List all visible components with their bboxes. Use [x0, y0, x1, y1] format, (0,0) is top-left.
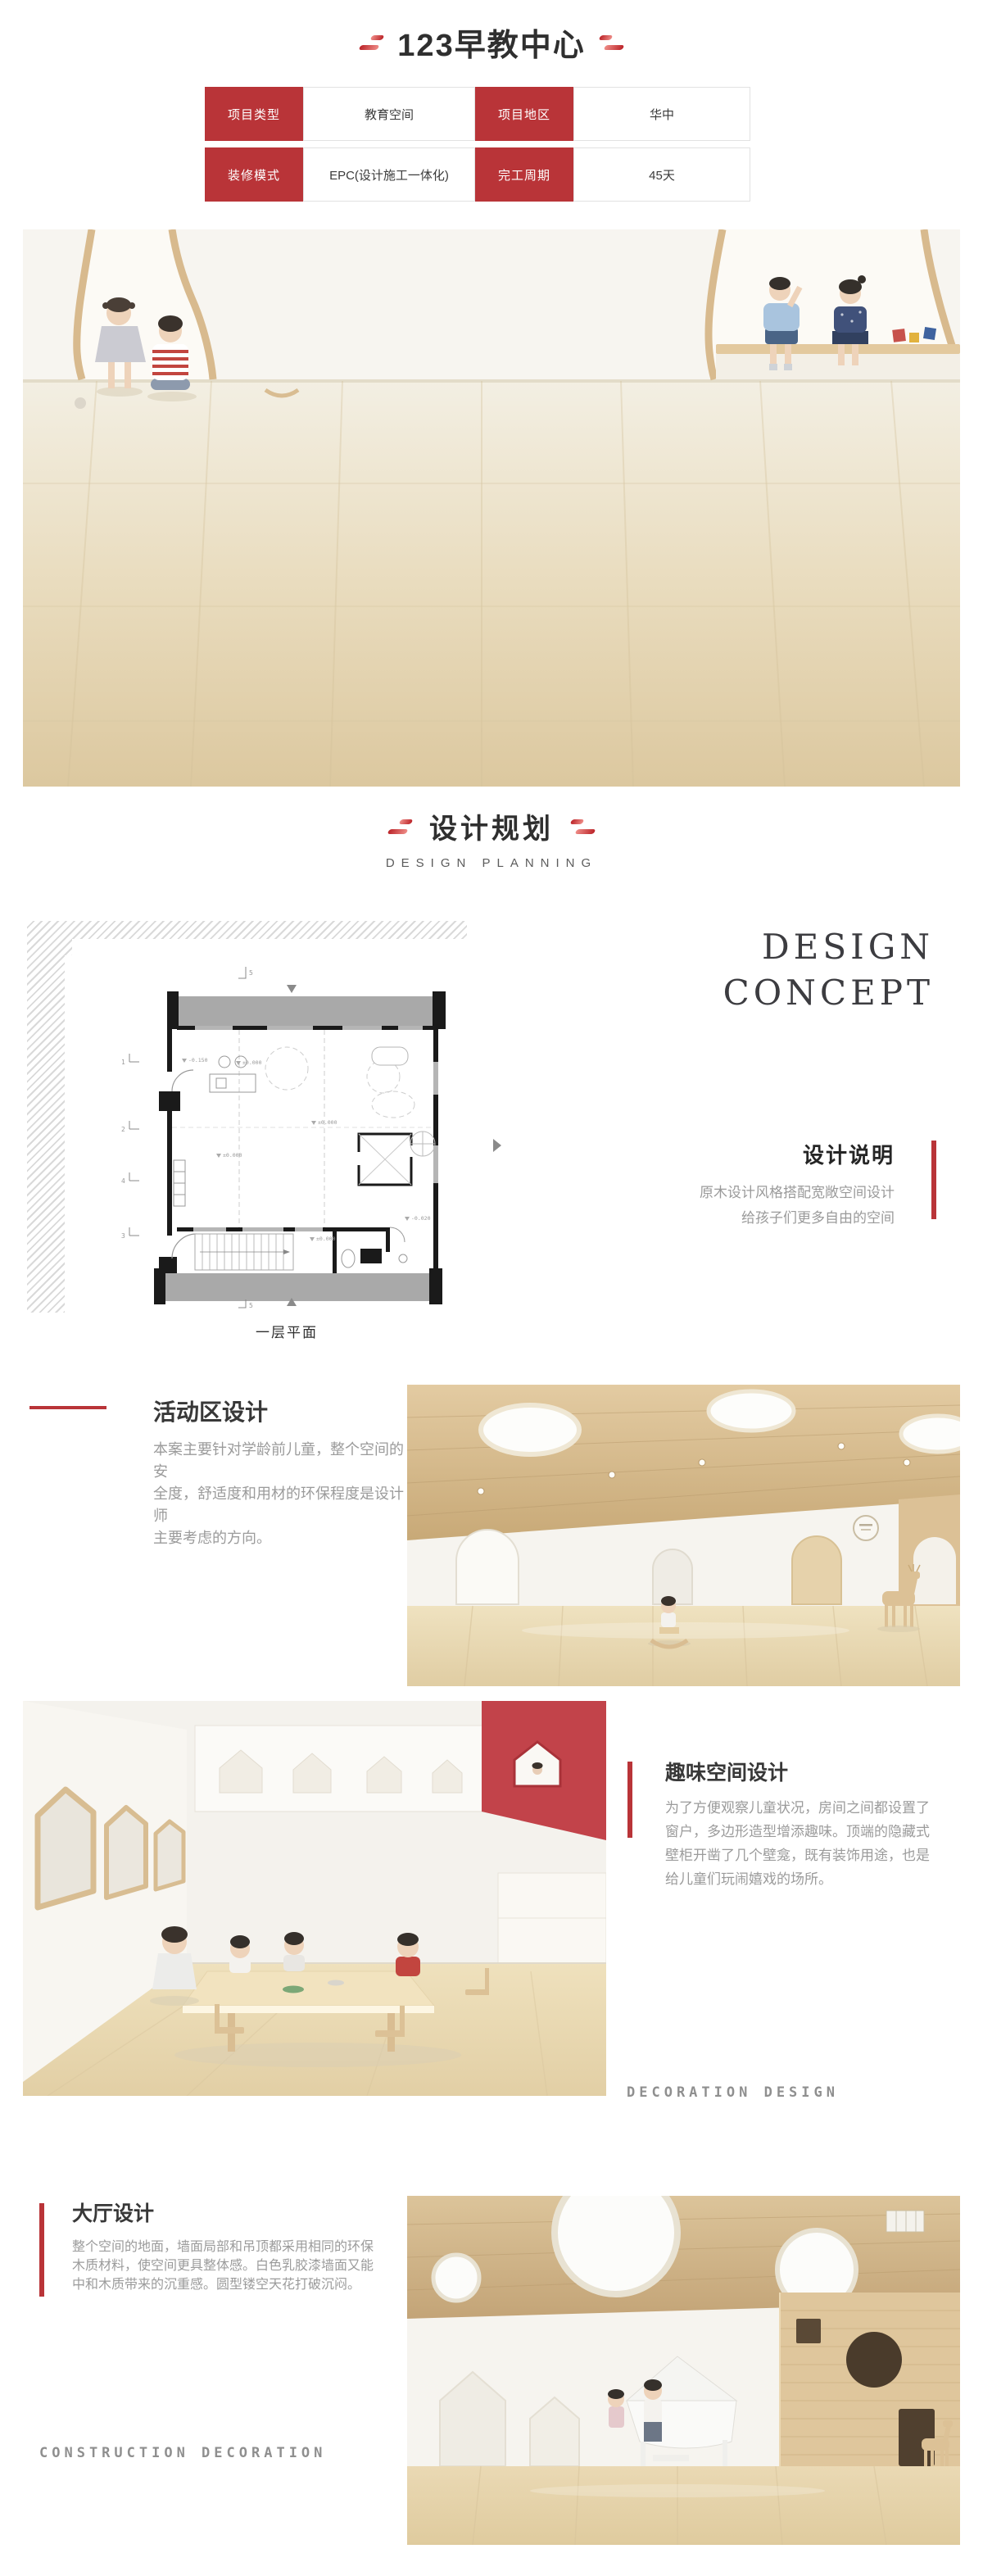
hero-illustration: [23, 229, 960, 787]
activity-illustration: [407, 1385, 960, 1686]
fun-red-bar: [627, 1762, 632, 1838]
floor-plan-figure: 1 2 4 3 5 5 -0.150 ±0.000 ±0.000 ±0.000 …: [72, 939, 501, 1311]
fun-body: 为了方便观察儿童状况，房间之间都设置了 窗户，多边形造型增添趣味。顶端的隐藏式 …: [665, 1796, 944, 1891]
project-info-table: 项目类型 教育空间 项目地区 华中 装修模式 EPC(设计施工一体化) 完工周期…: [205, 87, 750, 202]
planning-accent-left-icon: [388, 818, 413, 836]
concept-red-bar: [931, 1141, 936, 1219]
fun-heading: 趣味空间设计: [665, 1757, 788, 1786]
page-title: 123早教中心: [397, 20, 585, 65]
decoration-design-watermark: DECORATION DESIGN: [627, 2084, 839, 2101]
info-value-project-region: 华中: [573, 87, 750, 141]
wall-arch: [456, 1530, 519, 1604]
activity-area-photo: [407, 1385, 960, 1686]
wall-cabinets: [195, 1726, 490, 1812]
grid-label: 4: [121, 1177, 125, 1185]
planning-title: 设计规划: [429, 806, 554, 846]
concept-description: 原木设计风格搭配宽敞空间设计 给孩子们更多自由的空间: [700, 1180, 895, 1231]
page-header: 123早教中心: [0, 20, 983, 65]
hall-heading: 大厅设计: [72, 2197, 154, 2227]
arch-niche-right: [709, 229, 960, 379]
wall-logo-plaque: [854, 1516, 878, 1540]
info-label-decoration-mode: 装修模式: [205, 147, 303, 202]
grid-label: 1: [121, 1059, 125, 1066]
toy-ball: [75, 397, 86, 409]
fun-space-photo: [23, 1701, 606, 2096]
concept-title-line2: CONCEPT: [723, 970, 934, 1016]
level-annotation: -0.150: [188, 1057, 208, 1064]
grid-label: 2: [121, 1126, 125, 1133]
floor: [23, 381, 960, 787]
hall-photo: [407, 2196, 960, 2545]
hatch-decoration-left: [27, 921, 65, 1313]
concept-title-line1: DESIGN: [723, 924, 934, 970]
construction-decoration-watermark: CONSTRUCTION DECORATION: [39, 2445, 326, 2461]
grid-label: 5: [249, 1302, 253, 1309]
hero-photo: [23, 229, 960, 787]
info-value-project-type: 教育空间: [303, 87, 475, 141]
level-annotation: ±0.000: [316, 1236, 336, 1242]
concept-big-title: DESIGN CONCEPT: [723, 924, 934, 1016]
info-label-project-region: 项目地区: [475, 87, 573, 141]
floor-plan-caption: 一层平面: [72, 1321, 501, 1341]
wall-arch: [653, 1549, 692, 1604]
activity-red-line: [29, 1406, 106, 1409]
stairs: [195, 1234, 293, 1270]
grid-label: 3: [121, 1232, 125, 1240]
info-value-completion-period: 45天: [573, 147, 750, 202]
title-accent-right-icon: [599, 34, 623, 52]
info-value-decoration-mode: EPC(设计施工一体化): [303, 147, 475, 202]
planning-section-header: 设计规划 DESIGN PLANNING: [0, 806, 983, 870]
hall-red-bar: [39, 2203, 44, 2297]
level-annotation: -0.020: [411, 1215, 431, 1222]
level-annotation: ±0.000: [223, 1152, 242, 1159]
floor: [407, 2466, 960, 2545]
title-accent-left-icon: [360, 34, 384, 52]
level-annotation: ±0.000: [242, 1059, 262, 1066]
info-label-completion-period: 完工周期: [475, 147, 573, 202]
wall-arch: [792, 1536, 841, 1604]
floor-plan-drawing: 1 2 4 3 5 5 -0.150 ±0.000 ±0.000 ±0.000 …: [72, 939, 501, 1311]
planning-subtitle: DESIGN PLANNING: [0, 856, 983, 870]
info-label-project-type: 项目类型: [205, 87, 303, 141]
level-annotation: ±0.000: [318, 1119, 337, 1126]
floor: [407, 1606, 960, 1686]
concept-heading: 设计说明: [803, 1139, 895, 1169]
article-page: 123早教中心 项目类型 教育空间 项目地区 华中 装修模式 EPC(设计施工一…: [0, 0, 983, 2576]
hall-body: 整个空间的地面，墙面局部和吊顶都采用相同的环保 木质材料，使空间更具整体感。白色…: [72, 2238, 400, 2294]
activity-body: 本案主要针对学龄前儿童，整个空间的安 全度，舒适度和用材的环保程度是设计师 主要…: [153, 1439, 415, 1549]
wood-wall-arch: [913, 1537, 956, 1604]
grid-label: 5: [249, 969, 253, 977]
fun-space-illustration: [23, 1701, 606, 2096]
activity-heading: 活动区设计: [153, 1395, 268, 1427]
hall-illustration: [407, 2196, 960, 2545]
planning-accent-right-icon: [570, 818, 595, 836]
